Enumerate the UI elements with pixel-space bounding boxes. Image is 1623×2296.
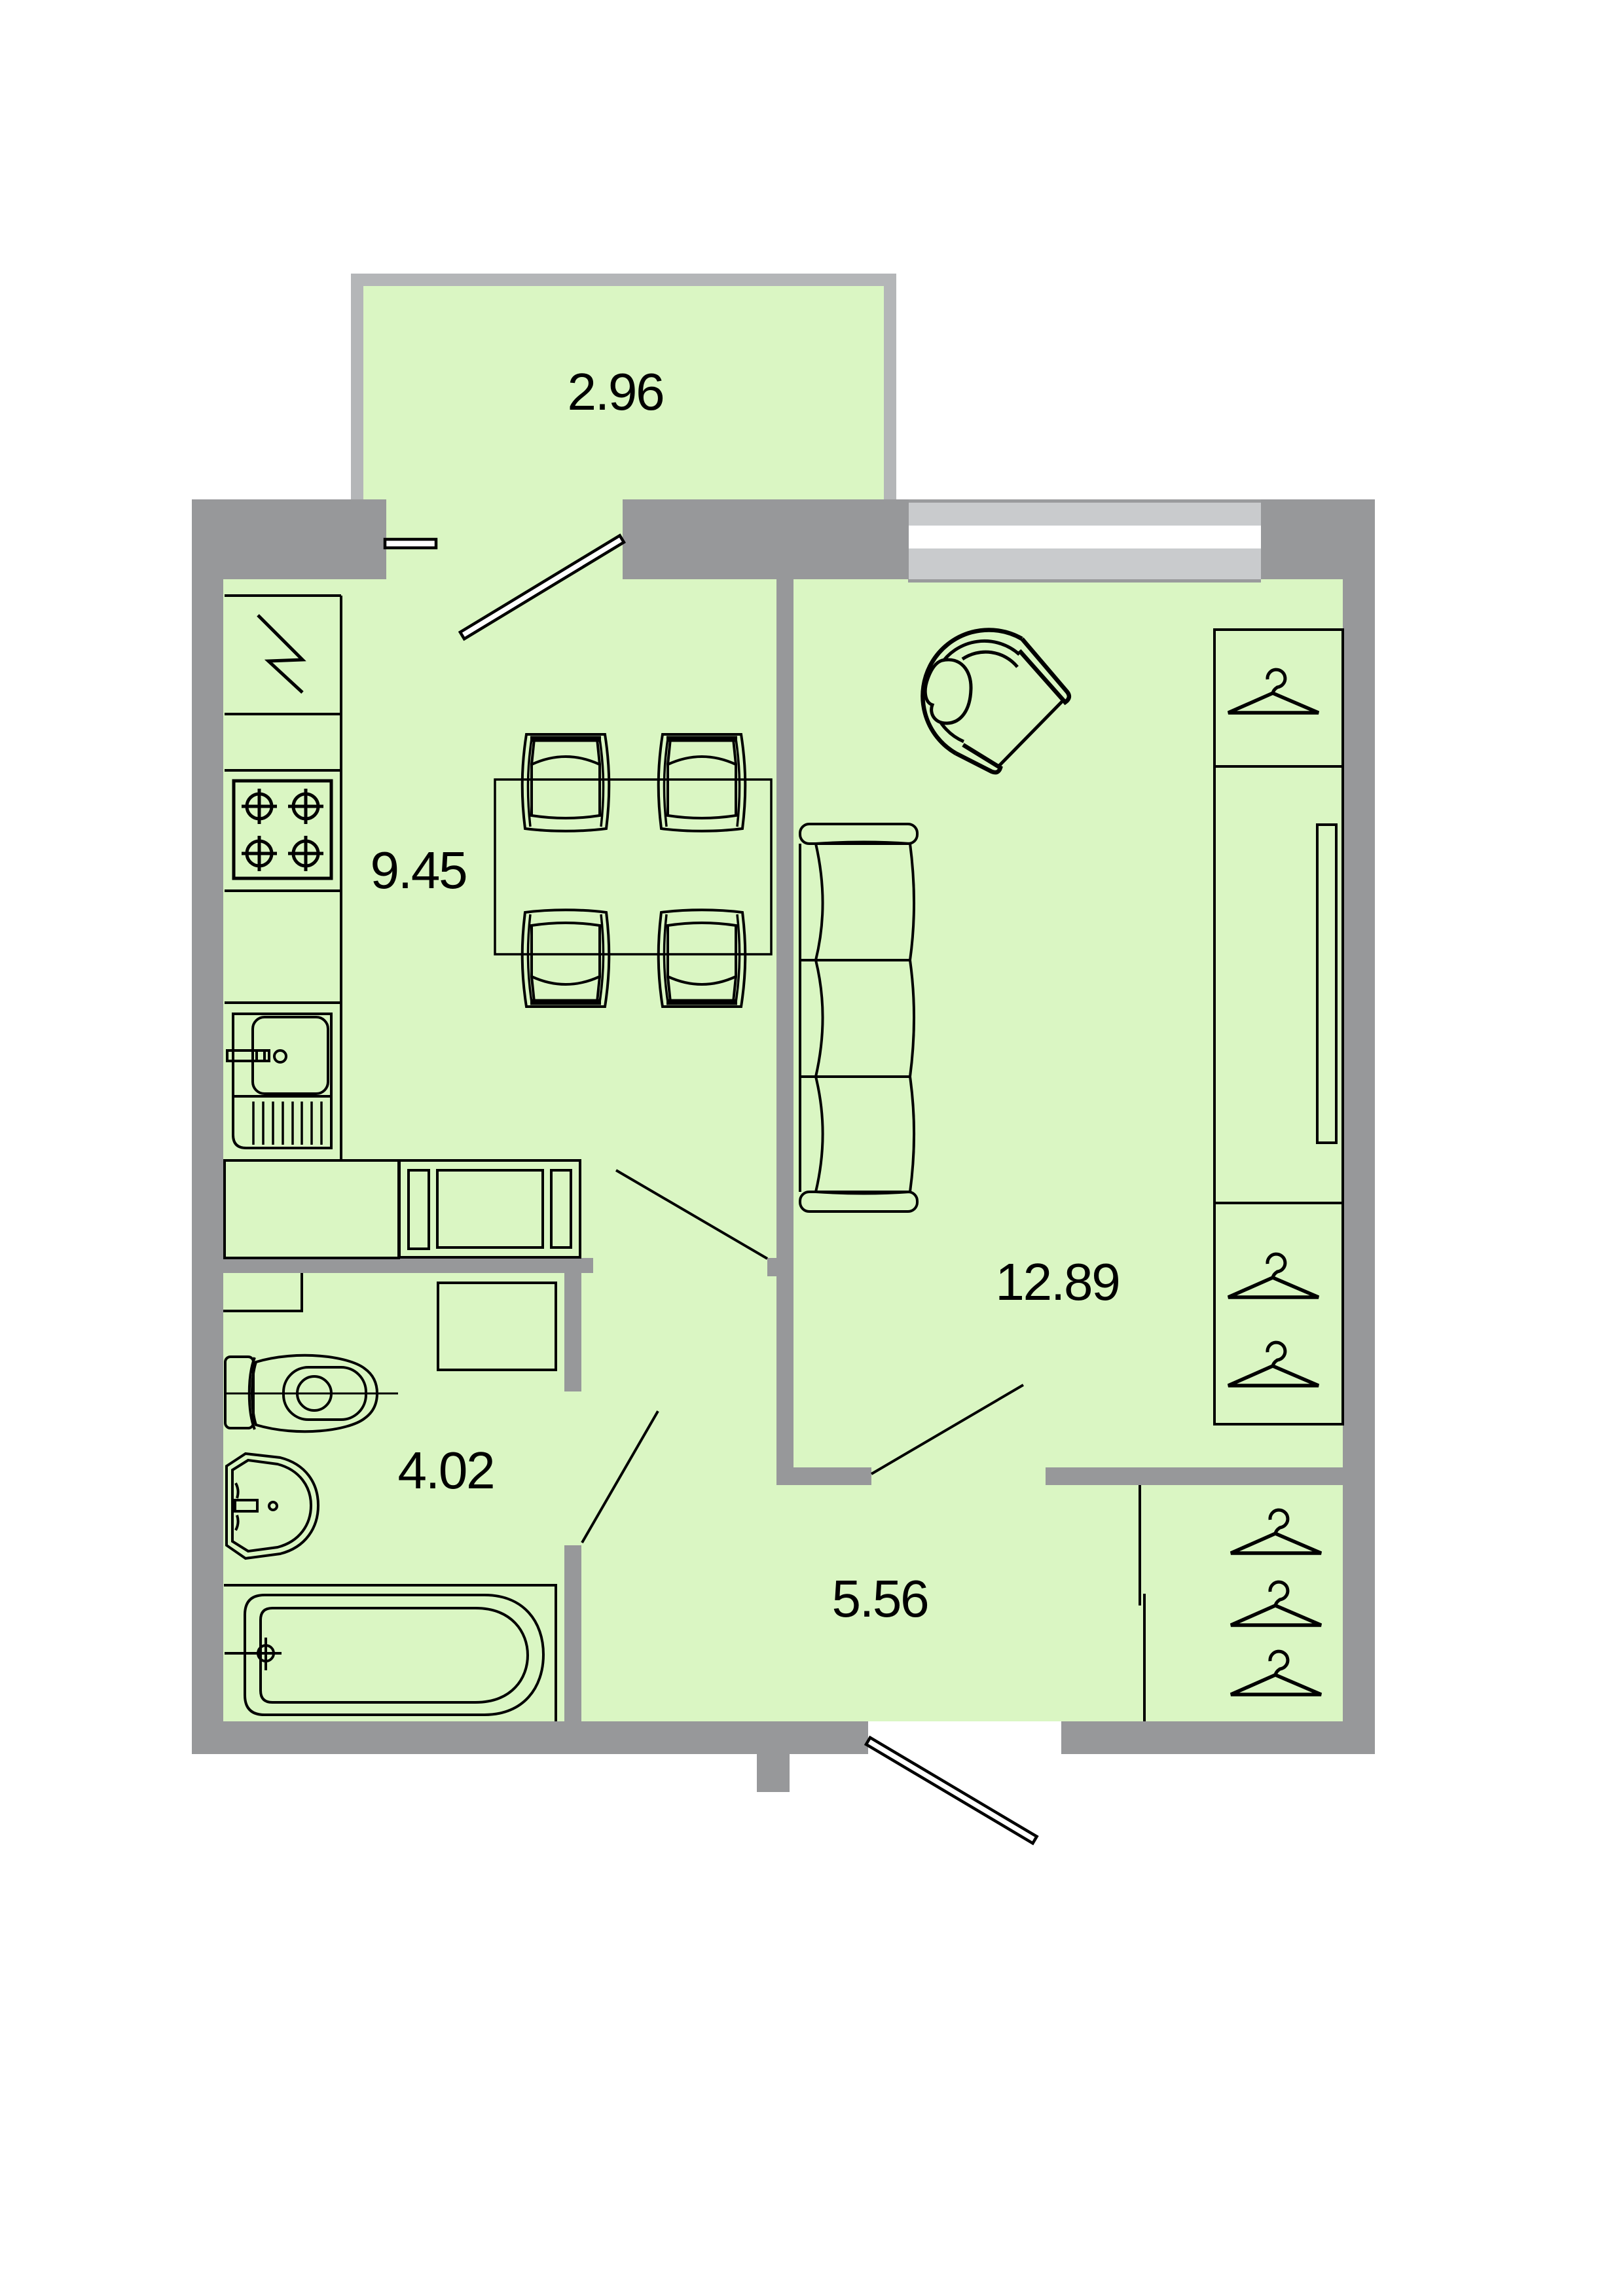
svg-text:12.89: 12.89 [995, 1253, 1119, 1311]
svg-text:5.56: 5.56 [832, 1570, 928, 1628]
svg-text:4.02: 4.02 [398, 1441, 494, 1499]
svg-text:9.45: 9.45 [371, 841, 467, 899]
svg-text:2.96: 2.96 [568, 363, 664, 421]
